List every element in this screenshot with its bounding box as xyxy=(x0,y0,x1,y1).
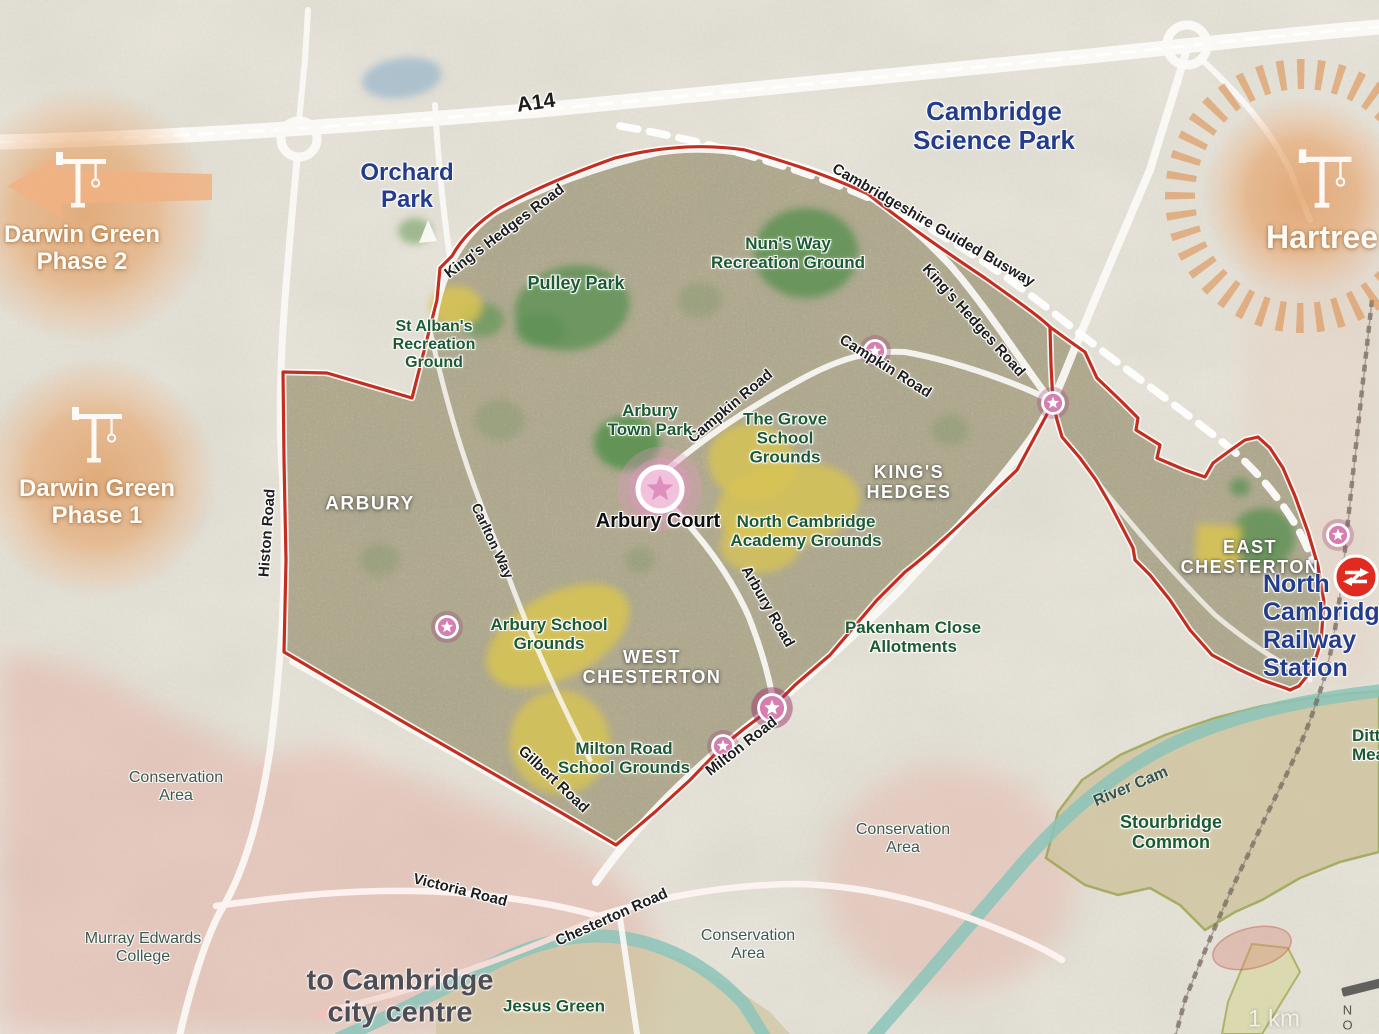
road-label-campkin-east: Campkin Road xyxy=(836,332,934,402)
pulley-park-label: Pulley Park xyxy=(527,273,624,293)
orchard-park-label: Orchard Park xyxy=(360,160,453,214)
road-label-milton-road: Milton Road xyxy=(703,714,781,780)
conservation-area-label-3: Conservation Area xyxy=(701,927,795,963)
road-label-a14: A14 xyxy=(515,89,556,118)
north-cambridge-station-label: North Cambridge Railway Station xyxy=(1263,570,1379,682)
map-canvas[interactable]: A14King's Hedges RoadKing's Hedges RoadC… xyxy=(0,0,1379,1034)
darwin-green-phase-1-label: Darwin Green Phase 1 xyxy=(19,476,175,530)
road-label-kings-hedges-west: King's Hedges Road xyxy=(442,182,568,283)
grove-school-grounds-label: The Grove School Grounds xyxy=(743,409,827,466)
road-label-campkin-west: Campkin Road xyxy=(685,367,776,447)
road-label-gilbert-road: Gilbert Road xyxy=(514,743,591,817)
darwin-green-phase-2-label: Darwin Green Phase 2 xyxy=(4,222,160,276)
arbury-court-label: Arbury Court xyxy=(596,510,720,532)
river-cam-label: River Cam xyxy=(1091,763,1171,810)
arbury-school-grounds-label: Arbury School Grounds xyxy=(490,615,607,653)
murray-edwards-college-label: Murray Edwards College xyxy=(85,930,201,966)
road-label-kings-hedges-east: King's Hedges Road xyxy=(918,261,1028,380)
arbury-town-park-label: Arbury Town Park xyxy=(608,401,693,439)
st-albans-recreation-label: St Alban's Recreation Ground xyxy=(393,318,476,372)
jesus-green-label: Jesus Green xyxy=(503,996,605,1015)
to-city-centre-label: to Cambridge city centre xyxy=(307,965,494,1030)
milton-road-school-label: Milton Road School Grounds xyxy=(558,739,690,777)
region-label-east-chesterton: EAST CHESTERTON xyxy=(1181,537,1320,577)
north-cambridge-academy-label: North Cambridge Academy Grounds xyxy=(730,512,881,550)
road-label-victoria-road: Victoria Road xyxy=(411,871,509,911)
compass-letters: N O xyxy=(1339,1003,1366,1032)
region-label-west-chesterton: WEST CHESTERTON xyxy=(583,647,722,687)
cambridge-science-park-label: Cambridge Science Park xyxy=(913,97,1075,155)
region-label-kings-hedges: KING'S HEDGES xyxy=(866,462,951,502)
road-label-histon: Histon Road xyxy=(257,488,280,577)
road-label-carlton-way: Carlton Way xyxy=(468,501,517,581)
road-label-chesterton-road: Chesterton Road xyxy=(553,886,670,950)
ditton-meadows-label: Ditton Meadows xyxy=(1352,726,1379,764)
scale-label: 1 km xyxy=(1248,1007,1300,1034)
pakenham-close-allotments-label: Pakenham Close Allotments xyxy=(845,618,981,656)
hartree-label: Hartree xyxy=(1266,220,1378,256)
nuns-way-recreation-label: Nun's Way Recreation Ground xyxy=(711,234,865,272)
conservation-area-label-2: Conservation Area xyxy=(856,821,950,857)
stourbridge-common-label: Stourbridge Common xyxy=(1120,812,1222,852)
road-label-arbury-road: Arbury Road xyxy=(737,563,797,650)
road-label-guided-busway: Cambridgeshire Guided Busway xyxy=(829,161,1037,291)
labels-layer: A14King's Hedges RoadKing's Hedges RoadC… xyxy=(0,0,1379,1034)
region-label-arbury: ARBURY xyxy=(325,493,415,514)
conservation-area-label-1: Conservation Area xyxy=(129,769,223,805)
